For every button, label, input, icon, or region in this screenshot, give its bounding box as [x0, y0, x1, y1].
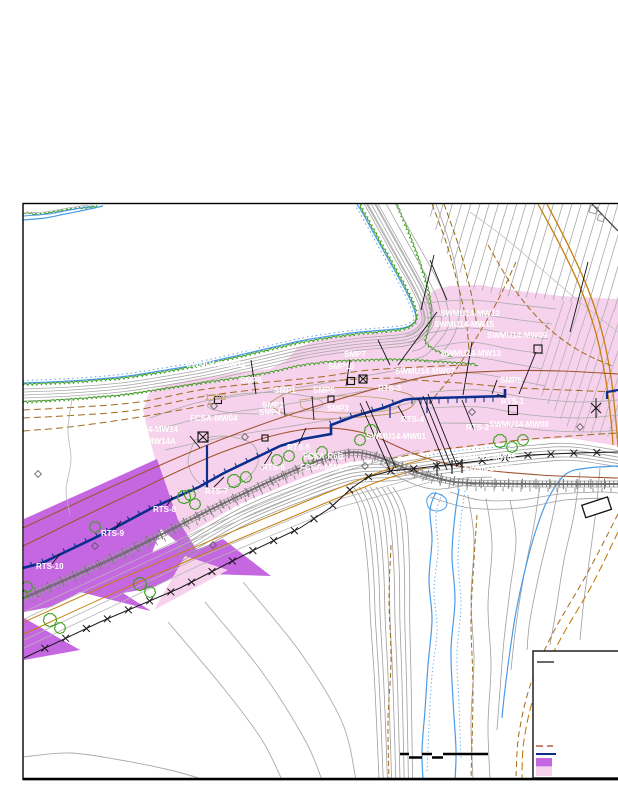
svg-text:SWMU14-MW09: SWMU14-MW09 [487, 331, 548, 340]
svg-text:1.70B: 1.70B [205, 393, 227, 402]
svg-text:RTS-3: RTS-3 [378, 384, 402, 393]
svg-text:RTS-5: RTS-5 [287, 443, 311, 452]
svg-text:SMP4: SMP4 [259, 408, 281, 417]
svg-text:SWMU14-MW01: SWMU14-MW01 [366, 432, 427, 441]
svg-text:RTS-6: RTS-6 [262, 463, 286, 472]
svg-text:SWMU14-MW14A: SWMU14-MW14A [110, 437, 176, 446]
svg-text:FCSA-MW10: FCSA-MW10 [300, 463, 348, 472]
svg-text:RTS-7: RTS-7 [205, 487, 229, 496]
svg-text:SWMU14-MW12: SWMU14-MW12 [440, 309, 501, 318]
svg-text:RTS-9: RTS-9 [101, 529, 125, 538]
svg-text:SWMU14-MW07: SWMU14-MW07 [395, 367, 456, 376]
svg-text:RTS-2: RTS-2 [466, 423, 490, 432]
svg-text:RTS-8: RTS-8 [153, 505, 177, 514]
svg-text:SMP10: SMP10 [328, 362, 355, 371]
svg-text:RTS-4: RTS-4 [401, 415, 425, 424]
svg-text:FCSA-R6B: FCSA-R6B [303, 452, 344, 461]
svg-text:SWMU14-MW06: SWMU14-MW06 [464, 464, 525, 473]
svg-text:SWMU14-MW05: SWMU14-MW05 [456, 453, 517, 462]
svg-text:RTS-1: RTS-1 [501, 397, 525, 406]
svg-text:SMP8: SMP8 [240, 376, 262, 385]
svg-text:RTS-10: RTS-10 [36, 562, 64, 571]
svg-text:SWMU14-MW11: SWMU14-MW11 [186, 360, 246, 369]
svg-text:FCSA-MW04: FCSA-MW04 [190, 414, 238, 423]
svg-text:SWMU14-MW03: SWMU14-MW03 [196, 344, 257, 353]
svg-text:SMP1: SMP1 [274, 386, 296, 395]
svg-text:SWMU14-MW14: SWMU14-MW14 [118, 425, 179, 434]
svg-text:SWMU14-MW15: SWMU14-MW15 [434, 320, 495, 329]
svg-text:SWMU14-MW13: SWMU14-MW13 [441, 349, 502, 358]
svg-text:SMP6: SMP6 [500, 376, 522, 385]
svg-text:SMP3: SMP3 [327, 404, 349, 413]
svg-text:SMP5: SMP5 [313, 386, 335, 395]
svg-text:SWMU14-MW08: SWMU14-MW08 [489, 420, 550, 429]
svg-text:SMP7: SMP7 [344, 350, 366, 359]
